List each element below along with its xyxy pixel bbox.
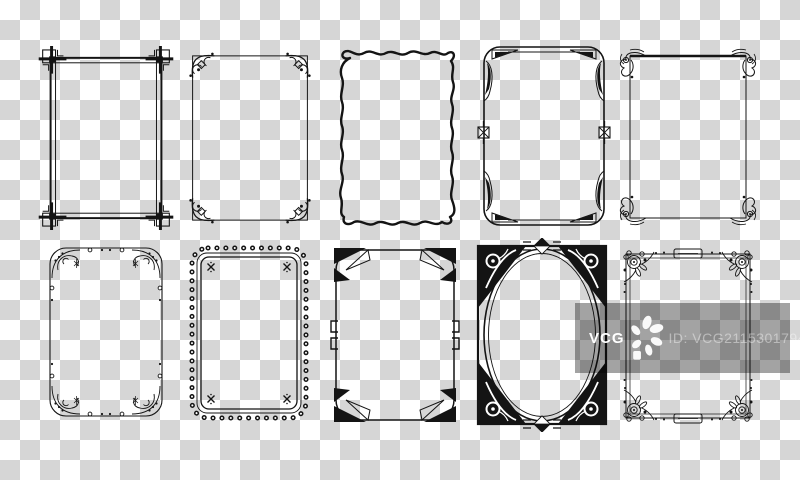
watermark-id-text: ID: VCG211530179467 xyxy=(669,330,800,346)
frame-loop-chain xyxy=(184,240,314,426)
artboard-transparency-checkerboard: VCG ID: VCG211530179467 xyxy=(0,0,800,480)
ornamental-frame-icon xyxy=(40,240,174,426)
ornamental-frame-icon xyxy=(474,38,614,234)
vcg-flower-logo-icon xyxy=(628,314,666,362)
ornamental-frame-icon xyxy=(184,240,314,426)
ornamental-frame-icon xyxy=(618,42,758,232)
ornamental-frame-icon xyxy=(36,44,176,232)
frame-art-deco xyxy=(474,38,614,234)
frame-wavy-line xyxy=(330,42,464,234)
frame-sprig-beads xyxy=(40,240,174,426)
frame-filigree xyxy=(618,42,758,232)
watermark-badge: VCG ID: VCG211530179467 xyxy=(575,303,790,373)
ornamental-frame-icon xyxy=(326,240,464,430)
frame-scroll-corners xyxy=(180,44,320,232)
ornamental-frame-icon xyxy=(180,44,320,232)
frame-nouveau-triangle xyxy=(326,240,464,430)
frame-corner-squares xyxy=(36,44,176,232)
watermark-brand-text: VCG xyxy=(589,330,625,347)
ornamental-frame-icon xyxy=(330,42,464,234)
